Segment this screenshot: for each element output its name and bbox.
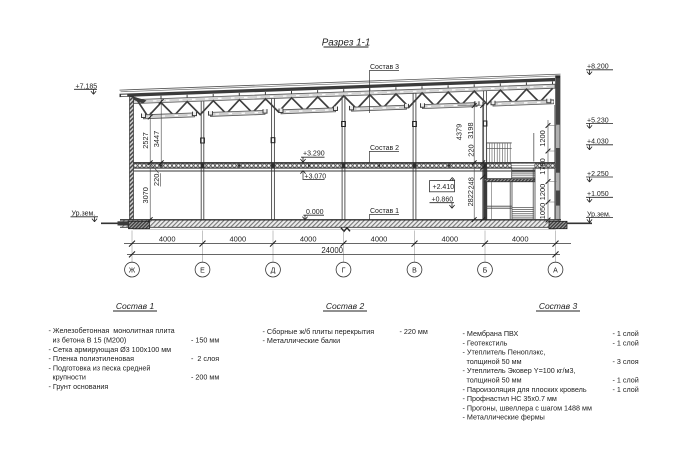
svg-text:2822: 2822 — [466, 190, 475, 206]
svg-text:Ж: Ж — [129, 267, 136, 274]
svg-text:Состав 3: Состав 3 — [539, 301, 578, 311]
svg-text:3070: 3070 — [141, 187, 150, 203]
svg-text:- Пленка полиэтиленовая: - Пленка полиэтиленовая — [49, 354, 135, 363]
svg-text:3198: 3198 — [466, 122, 475, 138]
svg-text:толщиной 50 мм: толщиной 50 мм — [463, 376, 522, 385]
svg-text:4000: 4000 — [159, 235, 176, 244]
svg-text:- Подготовка из песка средней: - Подготовка из песка средней — [49, 363, 151, 372]
svg-text:Б: Б — [483, 267, 488, 274]
svg-text:Состав 3: Состав 3 — [370, 64, 399, 71]
svg-text:- Железобетонная монолитная п: - Железобетонная монолитная плита — [49, 326, 175, 335]
svg-text:24000: 24000 — [321, 246, 343, 255]
svg-text:- Пароизоляция для плоских кро: - Пароизоляция для плоских кровель — [463, 385, 587, 394]
svg-text:+2.410: +2.410 — [433, 184, 455, 191]
svg-text:Г: Г — [342, 267, 346, 274]
svg-text:1050: 1050 — [538, 203, 547, 219]
svg-text:+3.290: +3.290 — [303, 151, 325, 158]
svg-text:- 150 мм: - 150 мм — [191, 336, 219, 345]
svg-text:- Прогоны, швеллера с шагом 14: - Прогоны, швеллера с шагом 1488 мм — [463, 403, 592, 412]
svg-text:- Грунт основания: - Грунт основания — [49, 382, 109, 391]
svg-text:из бетона В 15 (М200): из бетона В 15 (М200) — [49, 336, 127, 345]
svg-text:- 220 мм: - 220 мм — [400, 327, 428, 336]
svg-text:2527: 2527 — [141, 132, 150, 148]
svg-text:1200: 1200 — [538, 184, 547, 200]
svg-text:- Металлические фермы: - Металлические фермы — [463, 413, 545, 422]
svg-text:0.000: 0.000 — [306, 209, 324, 216]
svg-text:- Геотекстиль: - Геотекстиль — [463, 338, 508, 347]
svg-text:- 1 слой: - 1 слой — [613, 338, 639, 347]
svg-text:220: 220 — [467, 144, 476, 156]
svg-text:В: В — [412, 267, 417, 274]
svg-text:- 1 слой: - 1 слой — [613, 329, 639, 338]
svg-text:- Сетка армирующая Ø3 100х100: - Сетка армирующая Ø3 100х100 мм — [49, 345, 172, 354]
svg-text:- Мембрана ПВХ: - Мембрана ПВХ — [463, 329, 519, 338]
svg-text:1780: 1780 — [538, 158, 547, 174]
svg-text:- 200 мм: - 200 мм — [191, 373, 219, 382]
svg-text:Состав 1: Состав 1 — [116, 301, 155, 311]
svg-text:Состав 2: Состав 2 — [370, 145, 399, 152]
svg-text:- 2 слоя: - 2 слоя — [191, 354, 219, 363]
svg-text:- Утеплитель Эковер Y=100 кг/м: - Утеплитель Эковер Y=100 кг/м3, — [463, 366, 576, 375]
svg-text:248: 248 — [467, 177, 476, 189]
svg-text:крупности: крупности — [49, 373, 86, 382]
svg-text:А: А — [553, 267, 558, 274]
svg-text:4379: 4379 — [455, 124, 464, 140]
svg-text:толщиной 50 мм: толщиной 50 мм — [463, 357, 522, 366]
svg-text:4000: 4000 — [300, 235, 317, 244]
svg-text:4000: 4000 — [512, 235, 529, 244]
svg-text:- Металлические балки: - Металлические балки — [263, 336, 341, 345]
svg-text:4000: 4000 — [229, 235, 246, 244]
svg-text:Состав 2: Состав 2 — [326, 301, 365, 311]
svg-text:- 1 слой: - 1 слой — [613, 376, 639, 385]
svg-text:220: 220 — [152, 174, 161, 186]
svg-text:Состав 1: Состав 1 — [370, 208, 399, 215]
svg-text:1200: 1200 — [538, 130, 547, 146]
svg-text:- 3 слоя: - 3 слоя — [613, 357, 639, 366]
svg-text:3447: 3447 — [152, 131, 161, 147]
svg-text:- Сборные ж/б плиты перекрытия: - Сборные ж/б плиты перекрытия — [263, 327, 375, 336]
svg-text:- 1 слой: - 1 слой — [613, 385, 639, 394]
svg-text:4000: 4000 — [441, 235, 458, 244]
svg-text:- Утеплитель Пеноплэкс,: - Утеплитель Пеноплэкс, — [463, 348, 546, 357]
svg-text:- Профнастил НС 35х0.7 мм: - Профнастил НС 35х0.7 мм — [463, 394, 557, 403]
svg-text:Д: Д — [271, 267, 276, 274]
svg-text:4000: 4000 — [371, 235, 388, 244]
svg-text:Е: Е — [200, 267, 205, 274]
